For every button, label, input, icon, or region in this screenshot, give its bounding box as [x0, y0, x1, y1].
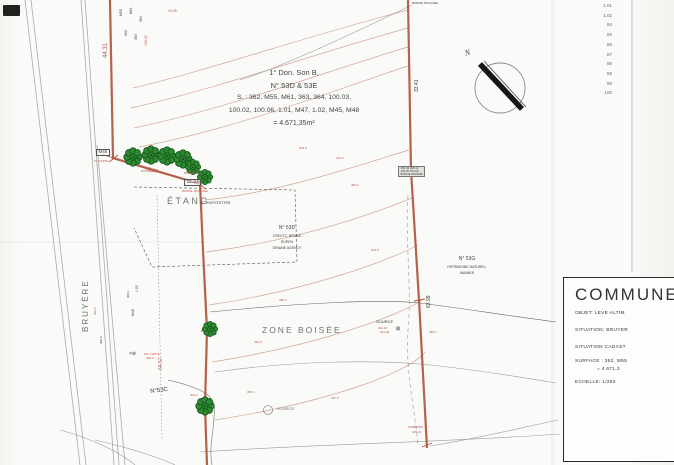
point-number: 85: [596, 30, 612, 40]
map-label: ◻: [200, 201, 203, 205]
point-number: 90: [596, 79, 612, 89]
parcel-note-line: S. : 362, M55, M61, 363, 364, 100.03,: [213, 92, 375, 105]
map-label: 405.2: [351, 184, 359, 187]
map-label: 398.4: [279, 299, 287, 302]
map-label: M48: [132, 309, 136, 316]
title-block-commune: COMMUNE: [575, 285, 674, 305]
map-label: 44.05: [168, 10, 177, 14]
map-label: SOURCE: [376, 320, 393, 324]
scan-fold-line: [0, 241, 210, 243]
tree-icon: [202, 321, 217, 336]
map-label: CREUTZ, BRUNO: [273, 235, 302, 239]
point-number: 1.02: [596, 11, 612, 21]
map-label: EUPEN: [281, 241, 293, 245]
point-number: 1.01: [596, 1, 612, 11]
map-label: 409.5: [94, 307, 97, 315]
map-label: M45: [96, 149, 110, 156]
title-block-cadastre: SITUATION CADAST: [575, 345, 626, 350]
point-number: 89: [596, 69, 612, 79]
map-label: 401.90: [380, 331, 389, 334]
parcel-note: 1° Don. Son B, N° 53D & 53E S. : 362, M5…: [213, 66, 375, 130]
title-block-situation: SITUATION: BRUYER: [575, 328, 628, 333]
map-label: 403.6: [299, 147, 307, 150]
tree-icon: [196, 397, 214, 415]
map-label: BORNE TROUVÉE: [182, 190, 208, 193]
map-label: N° 53G: [459, 257, 475, 262]
map-label: 63.99: [427, 295, 432, 308]
parcel-note-line: N° 53D & 53E: [213, 79, 375, 92]
map-label: 362: [125, 30, 129, 36]
stream-line: [407, 195, 418, 445]
map-label: 11.32: [184, 179, 201, 186]
point-number: 100: [596, 88, 612, 98]
map-label: 64.57: [159, 357, 164, 370]
tree-icon: [142, 146, 160, 164]
map-label: 100.03 395.12 100.06 394.90 BORNE REPÈRE: [398, 166, 425, 177]
scan-mark: [3, 5, 20, 16]
map-label: 44.31: [103, 43, 109, 58]
map-label: PATRIMOINE NATUREL,: [447, 266, 486, 270]
point-number: 88: [596, 59, 612, 69]
map-label: BRUYÈRE: [82, 279, 90, 332]
parcel-note-line: 1° Don. Son B,: [213, 66, 375, 79]
map-label: WAIMES: [460, 272, 474, 276]
map-label: AUBÉPINE: [408, 426, 423, 429]
point-number-column: 1.011.0284858687888990100: [596, 1, 612, 98]
map-label: 33.41: [415, 79, 420, 92]
scan-fold-line: [551, 0, 554, 465]
map-label: 406.1: [127, 290, 130, 298]
map-label: 404.8: [371, 249, 379, 252]
parcel-note-line: 100.02, 100.06, 1.01, M47, 1.02, M45, M4…: [213, 105, 375, 118]
map-label: 401.3: [336, 157, 344, 160]
map-label: 408.2: [146, 357, 154, 360]
map-label: 403.2: [190, 394, 198, 397]
map-label: ORIANE AGENCY: [273, 247, 302, 251]
map-label: M61: [130, 7, 134, 14]
map-label: 425.16: [412, 431, 421, 434]
map-label: 408.9: [100, 336, 103, 344]
map-label: M55: [120, 9, 124, 16]
point-number: 86: [596, 40, 612, 50]
map-label: ZONE BOISÉE: [262, 326, 342, 335]
map-label: 1.02: [136, 285, 140, 292]
map-label: BOULEAU: [141, 170, 155, 173]
survey-plan-sheet: 1° Don. Son B, N° 53D & 53E S. : 362, M5…: [0, 0, 674, 465]
road-lines: [25, 0, 125, 465]
map-label: 399.2: [429, 331, 437, 334]
map-label: BORNE TROUVÉE: [412, 2, 438, 5]
title-block-surface: SURFACE : 362, M55: [575, 359, 627, 364]
map-label: N° 53D: [279, 226, 295, 231]
map-label: 396.8: [254, 341, 262, 344]
map-label: ×⊚: [129, 352, 136, 357]
tree-icon: [158, 147, 176, 165]
map-label: HOFSTETTER: [207, 202, 230, 206]
map-label: 395.1: [247, 391, 255, 394]
map-label: 100.02: [145, 35, 149, 46]
map-label: 397.5: [331, 397, 339, 400]
title-block: COMMUNE OBJET: LEVE ALTIM SITUATION: BRU…: [563, 277, 674, 462]
map-label: 363: [135, 34, 139, 40]
map-label: 364: [140, 16, 144, 22]
point-number: 84: [596, 20, 612, 30]
title-block-surface-total: = 4.671,3: [597, 367, 620, 372]
title-block-objet: OBJET: LEVE ALTIM: [575, 311, 625, 316]
map-label: PT LIMITE: [94, 160, 108, 163]
point-number: 87: [596, 50, 612, 60]
map-label: ÉTANG: [167, 197, 210, 206]
parcel-note-line: = 4.671,35m²: [213, 117, 375, 130]
title-block-echelle: ECHELLE: 1/250: [575, 380, 616, 385]
tree-icon: [124, 148, 142, 166]
map-label: ⊠: [396, 327, 400, 332]
map-label: BOULEAU: [184, 172, 198, 175]
fence-line: [157, 195, 162, 440]
north-arrow-icon: [475, 61, 526, 113]
map-label: SOURCE: [277, 407, 294, 411]
